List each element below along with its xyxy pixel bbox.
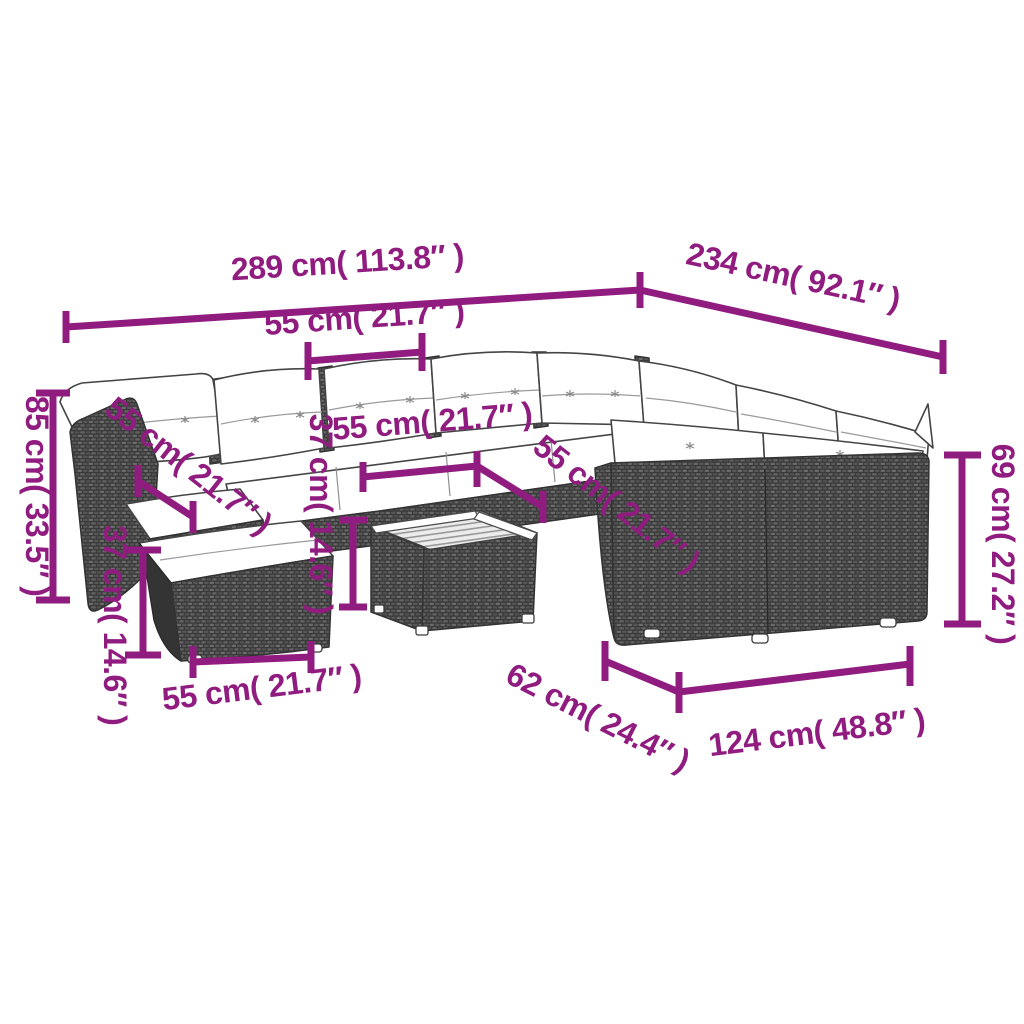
dim-label-right-section-length: 124 cm( 48.8″ ) — [706, 701, 926, 763]
dim-label-table-depth: 62 cm( 24.4″ ) — [501, 656, 696, 779]
dim-label-left-seat-height: 37 cm( 14.6″ ) — [97, 525, 133, 725]
table-foot — [522, 614, 534, 623]
coffee-table — [371, 511, 537, 635]
sofa-foot — [752, 634, 768, 643]
table-foot — [374, 605, 384, 613]
right-sofa-section — [595, 453, 929, 645]
dim-table-depth: 62 cm( 24.4″ ) — [501, 641, 696, 779]
dim-label-middle-seat-height: 37 cm( 14.6″ ) — [303, 414, 339, 614]
dim-label-overall-width: 289 cm( 113.8″ ) — [230, 237, 465, 288]
back-cushion — [537, 353, 644, 425]
product-dimension-diagram: 289 cm( 113.8″ ) 234 cm( 92.1″ ) 55 cm( … — [0, 0, 1024, 1024]
table-foot — [416, 626, 428, 635]
sofa-foot — [880, 618, 896, 627]
dim-backrest-height: 69 cm( 27.2″ ) — [944, 444, 1021, 644]
dim-label-total-height: 85 cm( 33.5″ ) — [19, 396, 55, 596]
dim-label-backrest-height: 69 cm( 27.2″ ) — [985, 444, 1021, 644]
dim-label-back-module-width: 55 cm( 21.7″ ) — [263, 292, 465, 342]
dim-overall-depth: 234 cm( 92.1″ ) — [640, 235, 943, 374]
diagram-canvas: 289 cm( 113.8″ ) 234 cm( 92.1″ ) 55 cm( … — [0, 0, 1024, 1024]
dim-total-height: 85 cm( 33.5″ ) — [19, 393, 70, 600]
dim-right-section-length: 124 cm( 48.8″ ) — [679, 646, 927, 763]
sofa-foot — [644, 629, 660, 638]
